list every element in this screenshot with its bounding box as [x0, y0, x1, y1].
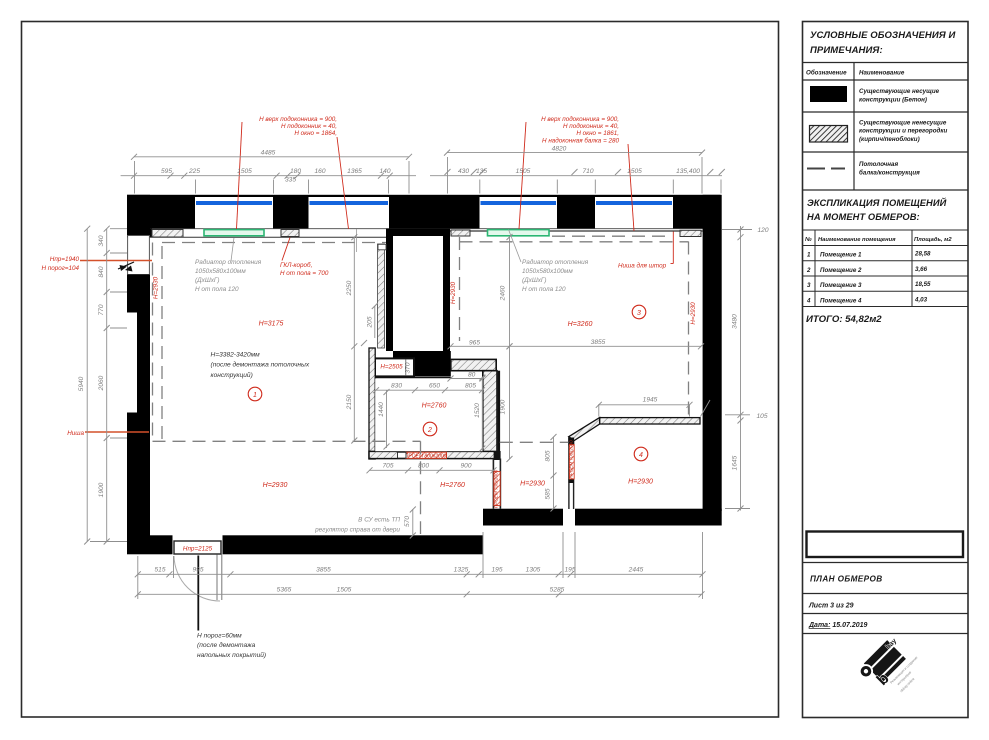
svg-text:1: 1 [253, 392, 257, 399]
svg-text:5940: 5940 [78, 376, 85, 391]
svg-text:Н=2505: Н=2505 [380, 364, 403, 371]
svg-text:Н=2930: Н=2930 [450, 281, 457, 304]
svg-text:конструкции (Бетон): конструкции (Бетон) [859, 97, 927, 104]
svg-text:Наименование: Наименование [859, 70, 905, 77]
svg-text:Дата: 15.07.2019: Дата: 15.07.2019 [808, 622, 867, 629]
svg-text:180: 180 [290, 168, 301, 175]
svg-text:2: 2 [427, 427, 432, 434]
svg-text:ПРОЕМ 700х2000: ПРОЕМ 700х2000 [493, 469, 498, 508]
svg-text:Обозначение: Обозначение [806, 70, 847, 77]
svg-text:№: № [805, 237, 812, 243]
svg-text:195: 195 [564, 566, 575, 573]
svg-text:Н=2930: Н=2930 [628, 479, 653, 486]
svg-text:Площадь, м2: Площадь, м2 [914, 237, 952, 243]
svg-text:Существующие ненесущие: Существующие ненесущие [859, 120, 947, 127]
svg-text:1325: 1325 [454, 566, 469, 573]
svg-text:2150: 2150 [346, 394, 353, 410]
svg-text:Помещение 3: Помещение 3 [820, 282, 862, 289]
svg-text:3,66: 3,66 [915, 266, 928, 273]
svg-text:900: 900 [460, 462, 471, 469]
svg-text:Н=2930: Н=2930 [263, 482, 288, 489]
svg-text:bay: bay [885, 638, 899, 652]
svg-text:2: 2 [806, 267, 811, 274]
svg-text:805: 805 [545, 450, 552, 461]
svg-text:2250: 2250 [346, 280, 353, 296]
svg-text:225: 225 [188, 168, 200, 175]
svg-text:Радиатор отопления: Радиатор отопления [522, 258, 589, 266]
svg-text:Н=2760: Н=2760 [422, 403, 447, 410]
svg-text:3855: 3855 [591, 339, 606, 346]
svg-text:1050х580х100мм: 1050х580х100мм [195, 268, 246, 275]
svg-text:1365: 1365 [347, 168, 362, 175]
svg-text:ПРИМЕЧАНИЯ:: ПРИМЕЧАНИЯ: [810, 45, 883, 56]
svg-text:(ДхШхГ): (ДхШхГ) [522, 277, 547, 284]
svg-text:3855: 3855 [316, 566, 331, 573]
svg-text:1505: 1505 [627, 168, 642, 175]
svg-text:1520: 1520 [474, 403, 481, 418]
svg-text:напольных покрытий): напольных покрытий) [197, 651, 266, 659]
svg-text:Н порог=60мм: Н порог=60мм [197, 633, 242, 640]
svg-text:1645: 1645 [731, 455, 738, 470]
svg-text:3: 3 [807, 282, 811, 289]
svg-text:105: 105 [757, 413, 768, 420]
svg-text:805: 805 [465, 382, 476, 389]
svg-text:Помещение 4: Помещение 4 [820, 297, 862, 304]
svg-text:4820: 4820 [552, 145, 567, 152]
svg-text:конструкций): конструкций) [211, 371, 253, 379]
svg-text:Н=3175: Н=3175 [259, 321, 284, 328]
svg-text:3480: 3480 [731, 314, 738, 329]
svg-text:Н верх подоконника = 900,: Н верх подоконника = 900, [541, 115, 619, 123]
svg-text:140: 140 [379, 168, 390, 175]
svg-text:Н окно = 1861,: Н окно = 1861, [576, 130, 619, 137]
svg-text:965: 965 [469, 339, 480, 346]
svg-text:ПЛАН ОБМЕРОВ: ПЛАН ОБМЕРОВ [810, 575, 883, 584]
svg-text:ПРОЕМ 700х2000: ПРОЕМ 700х2000 [569, 440, 574, 479]
svg-text:4: 4 [639, 452, 643, 459]
svg-text:570: 570 [404, 516, 411, 527]
svg-text:1505: 1505 [516, 168, 531, 175]
svg-text:(после демонтажа: (после демонтажа [197, 641, 256, 649]
svg-text:1050х580х100мм: 1050х580х100мм [522, 268, 573, 275]
svg-text:ЭКСПЛИКАЦИЯ ПОМЕЩЕНИЙ: ЭКСПЛИКАЦИЯ ПОМЕЩЕНИЙ [807, 197, 947, 208]
svg-text:705: 705 [382, 462, 393, 469]
svg-text:830: 830 [391, 382, 402, 389]
svg-text:5365: 5365 [277, 586, 292, 593]
svg-text:28,58: 28,58 [914, 251, 931, 258]
svg-text:Н=2930: Н=2930 [520, 481, 545, 488]
svg-text:Н верх подоконника = 900,: Н верх подоконника = 900, [259, 115, 337, 123]
svg-text:Н подоконник = 40,: Н подоконник = 40, [563, 122, 619, 130]
svg-text:Н надоконная балка = 280: Н надоконная балка = 280 [542, 137, 619, 145]
svg-text:Наименование помещения: Наименование помещения [818, 237, 896, 243]
svg-text:5285: 5285 [550, 586, 565, 593]
svg-text:Н=2930: Н=2930 [153, 276, 160, 299]
svg-text:Н порог=104: Н порог=104 [41, 265, 79, 272]
svg-text:160: 160 [314, 168, 325, 175]
svg-text:4: 4 [806, 297, 811, 304]
svg-text:135,400: 135,400 [676, 168, 700, 175]
svg-text:Н=3260: Н=3260 [568, 321, 593, 328]
svg-text:430: 430 [458, 168, 469, 175]
svg-text:195: 195 [491, 566, 502, 573]
svg-text:370: 370 [405, 362, 412, 373]
svg-text:340: 340 [98, 235, 105, 246]
svg-text:конструкции и перегородки: конструкции и перегородки [859, 128, 947, 135]
svg-text:2460: 2460 [500, 285, 507, 301]
svg-text:Н от пола 120: Н от пола 120 [195, 286, 239, 293]
svg-text:3: 3 [637, 310, 641, 317]
svg-text:80: 80 [468, 372, 476, 379]
svg-text:балка/конструкция: балка/конструкция [859, 170, 920, 177]
svg-text:650: 650 [429, 382, 440, 389]
svg-text:135: 135 [476, 168, 487, 175]
svg-text:595: 595 [161, 168, 172, 175]
svg-text:205: 205 [367, 316, 374, 328]
svg-text:1945: 1945 [643, 396, 658, 403]
svg-text:регулятор справа от двери: регулятор справа от двери [314, 526, 400, 534]
svg-text:Потолочная: Потолочная [859, 161, 898, 168]
svg-text:2445: 2445 [628, 566, 644, 573]
svg-text:НА МОМЕНТ ОБМЕРОВ:: НА МОМЕНТ ОБМЕРОВ: [807, 212, 920, 222]
svg-text:Существующие несущие: Существующие несущие [859, 88, 940, 95]
svg-text:1: 1 [807, 252, 811, 259]
svg-text:Помещение 1: Помещение 1 [820, 252, 862, 259]
svg-text:Лист 3 из 29: Лист 3 из 29 [808, 603, 854, 610]
svg-text:Нпр=2125: Нпр=2125 [183, 546, 213, 553]
svg-text:Н=2760: Н=2760 [440, 482, 465, 489]
svg-text:515: 515 [154, 566, 165, 573]
svg-text:УСЛОВНЫЕ ОБОЗНАЧЕНИЯ И: УСЛОВНЫЕ ОБОЗНАЧЕНИЯ И [810, 30, 956, 41]
svg-text:4485: 4485 [261, 150, 276, 157]
svg-text:Ниша: Ниша [67, 430, 84, 437]
svg-text:Радиатор отопления: Радиатор отопления [195, 258, 262, 266]
svg-text:В СУ есть ТП: В СУ есть ТП [358, 517, 400, 524]
svg-text:1505: 1505 [337, 586, 352, 593]
svg-text:18,55: 18,55 [915, 281, 931, 288]
svg-text:Н=3382-3420мм: Н=3382-3420мм [211, 352, 261, 359]
svg-text:Н от пола = 700: Н от пола = 700 [280, 270, 329, 277]
svg-text:1900: 1900 [98, 482, 105, 497]
svg-text:Н=2930: Н=2930 [690, 302, 697, 325]
svg-text:ИТОГО: 54,82м2: ИТОГО: 54,82м2 [806, 314, 882, 325]
svg-text:585: 585 [545, 488, 552, 499]
svg-text:1505: 1505 [237, 168, 252, 175]
svg-text:1305: 1305 [526, 566, 541, 573]
svg-text:120: 120 [758, 227, 769, 234]
svg-text:995: 995 [192, 566, 203, 573]
svg-text:Помещение 2: Помещение 2 [820, 267, 862, 274]
svg-text:4,03: 4,03 [914, 296, 928, 303]
svg-text:335: 335 [285, 176, 296, 183]
svg-text:710: 710 [582, 168, 593, 175]
svg-text:2060: 2060 [98, 375, 105, 391]
svg-text:(после демонтажа потолочных: (после демонтажа потолочных [211, 361, 310, 369]
svg-text:ПРОЕМ 800х2000: ПРОЕМ 800х2000 [405, 454, 447, 460]
svg-text:(кирпич/пеноблоки): (кирпич/пеноблоки) [859, 136, 920, 143]
svg-text:Н подоконник = 40,: Н подоконник = 40, [281, 122, 337, 130]
svg-text:(ДхШхГ): (ДхШхГ) [195, 277, 220, 284]
svg-text:1440: 1440 [378, 402, 385, 417]
svg-text:800: 800 [418, 462, 429, 469]
svg-text:Н окно = 1864,: Н окно = 1864, [294, 130, 337, 137]
svg-text:1900: 1900 [500, 399, 507, 414]
svg-text:Ниша для штор: Ниша для штор [618, 262, 667, 270]
svg-text:Н от пола 120: Н от пола 120 [522, 286, 566, 293]
svg-text:840: 840 [98, 266, 105, 277]
svg-text:Нпр=1940: Нпр=1940 [50, 256, 80, 263]
svg-text:770: 770 [98, 304, 105, 315]
svg-text:ГКЛ-короб,: ГКЛ-короб, [280, 261, 313, 269]
